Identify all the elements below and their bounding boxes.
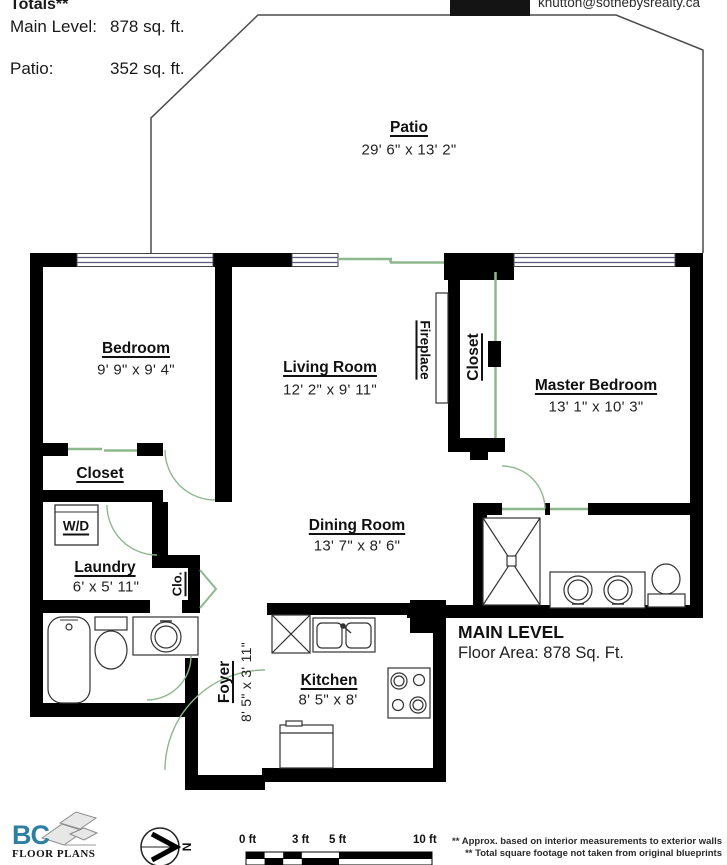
window-master-bedroom [514, 254, 675, 267]
main-level-area: Floor Area: 878 Sq. Ft. [458, 644, 624, 663]
dining-room-dims: 13' 7" x 8' 6" [314, 538, 400, 555]
tub-faucet [66, 624, 72, 630]
dining-room-label: Dining Room [309, 517, 405, 535]
totals-heading: Totals** [10, 0, 68, 14]
foyer-room-dims: 8' 5" x 3' 11" [238, 642, 254, 722]
bedroom-room-dims: 9' 9" x 9' 4" [97, 362, 175, 379]
patio-room-dims: 29' 6" x 13' 2" [361, 142, 456, 159]
main-level-value: 878 sq. ft. [110, 17, 185, 37]
footnotes: ** Approx. based on interior measurement… [452, 836, 722, 859]
laundry-room-label: Laundry [74, 559, 135, 577]
living-room-dims: 12' 2" x 9' 11" [283, 382, 377, 399]
patio-sliding-door [338, 259, 444, 263]
compass [141, 828, 179, 865]
living-room-label: Living Room [283, 359, 377, 377]
clo-closet-label: Clo. [170, 572, 185, 597]
master-door-arc [502, 466, 545, 509]
clo-accordion-door [200, 570, 216, 608]
fireplace-box [436, 293, 448, 403]
bedroom-closet-doors [68, 449, 137, 451]
bc-logo-subtext: FLOOR PLANS [12, 848, 95, 860]
scale-tick-5: 5 ft [329, 834, 346, 846]
main-level-label: Main Level: [10, 17, 97, 37]
bathroom-door-arc [147, 656, 191, 700]
foyer-room-label: Foyer [216, 661, 234, 703]
scale-bar [246, 852, 432, 865]
window-bedroom [77, 254, 213, 267]
logo-sketch-icon [42, 812, 97, 845]
kitchen-island-counter [280, 721, 333, 768]
agency-logo-partial [450, 0, 530, 16]
floor-plan-drawing [0, 0, 727, 865]
patio-total-label: Patio: [10, 59, 53, 79]
bathroom-upper-fixtures [483, 518, 685, 608]
main-level-title: MAIN LEVEL [458, 622, 564, 643]
floor-plan-page: Totals** Main Level: 878 sq. ft. Patio: … [0, 0, 727, 865]
toilet [648, 564, 685, 607]
bedroom-door-arc [165, 450, 215, 500]
toilet-tank [648, 594, 685, 607]
window-living [292, 254, 338, 267]
scale-tick-3: 3 ft [292, 834, 309, 846]
toilet-bowl [652, 564, 680, 594]
double-vanity [550, 572, 645, 608]
shower [483, 518, 540, 605]
bedroom-closet-label: Closet [76, 465, 123, 483]
stove [388, 668, 430, 718]
scale-tick-0: 0 ft [239, 834, 256, 846]
kitchen-room-label: Kitchen [301, 672, 358, 690]
agent-email: khutton@sothebysrealty.ca [538, 0, 700, 10]
bc-logo-text: BC [12, 820, 49, 851]
footnote-2: ** Total square footage not taken from o… [452, 848, 722, 860]
toilet-tank [95, 617, 127, 630]
washer-dryer-label: W/D [63, 519, 89, 534]
dishwasher [272, 615, 310, 653]
laundry-door-arc [107, 505, 157, 555]
fireplace-label: Fireplace [418, 320, 433, 379]
master-bedroom-label: Master Bedroom [535, 377, 657, 395]
double-sink [313, 618, 375, 652]
master-bedroom-dims: 13' 1" x 10' 3" [548, 399, 643, 416]
scale-tick-10: 10 ft [413, 834, 437, 846]
compass-north-label: N [179, 843, 193, 852]
footnote-1: ** Approx. based on interior measurement… [452, 836, 722, 848]
kitchen-room-dims: 8' 5" x 8' [298, 692, 357, 709]
toilet-bowl [95, 631, 127, 669]
laundry-room-dims: 6' x 5' 11" [73, 579, 140, 596]
patio-room-label: Patio [390, 119, 428, 137]
bedroom-room-label: Bedroom [102, 340, 170, 358]
master-closet-label: Closet [465, 333, 483, 380]
patio-total-value: 352 sq. ft. [110, 59, 185, 79]
